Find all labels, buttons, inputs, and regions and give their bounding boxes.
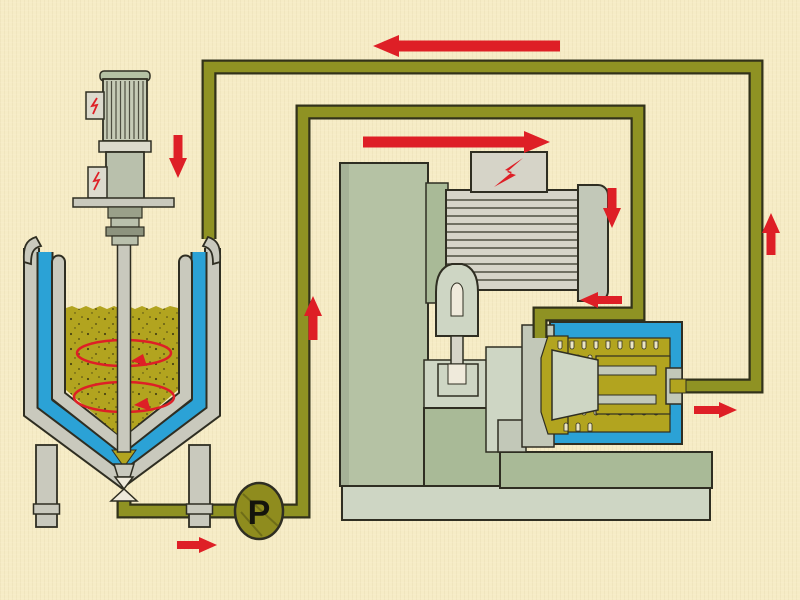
process-diagram: P: [0, 0, 800, 600]
rotor-groove-slot: [596, 395, 656, 404]
rotor-groove-block: [596, 356, 670, 414]
mill: [522, 322, 682, 447]
coupling-band: [112, 236, 138, 245]
valve-neck: [114, 464, 134, 477]
motor-end-cap: [578, 185, 608, 301]
mill-rotor-cone: [552, 350, 598, 420]
pump-label: P: [248, 494, 271, 532]
coupling-band: [108, 207, 142, 218]
rotor-groove-slot: [596, 366, 656, 375]
control-cabinet: [340, 163, 428, 486]
mounting-plate: [73, 198, 174, 207]
machine-mid-base: [500, 452, 712, 488]
machine-base-plate: [342, 486, 710, 520]
cabinet-shade: [341, 164, 349, 485]
circulation-pump: P: [235, 483, 283, 539]
drive-shaft: [451, 336, 463, 366]
leg-collar: [34, 504, 60, 514]
coupling-band: [106, 227, 144, 236]
outlet-stub: [670, 379, 686, 393]
coupling-notch: [448, 364, 466, 384]
gear-housing: [106, 152, 144, 199]
coupling-band: [111, 218, 139, 227]
bell-keyhole: [451, 283, 463, 316]
leg-collar: [187, 504, 213, 514]
motor-band: [99, 141, 151, 152]
